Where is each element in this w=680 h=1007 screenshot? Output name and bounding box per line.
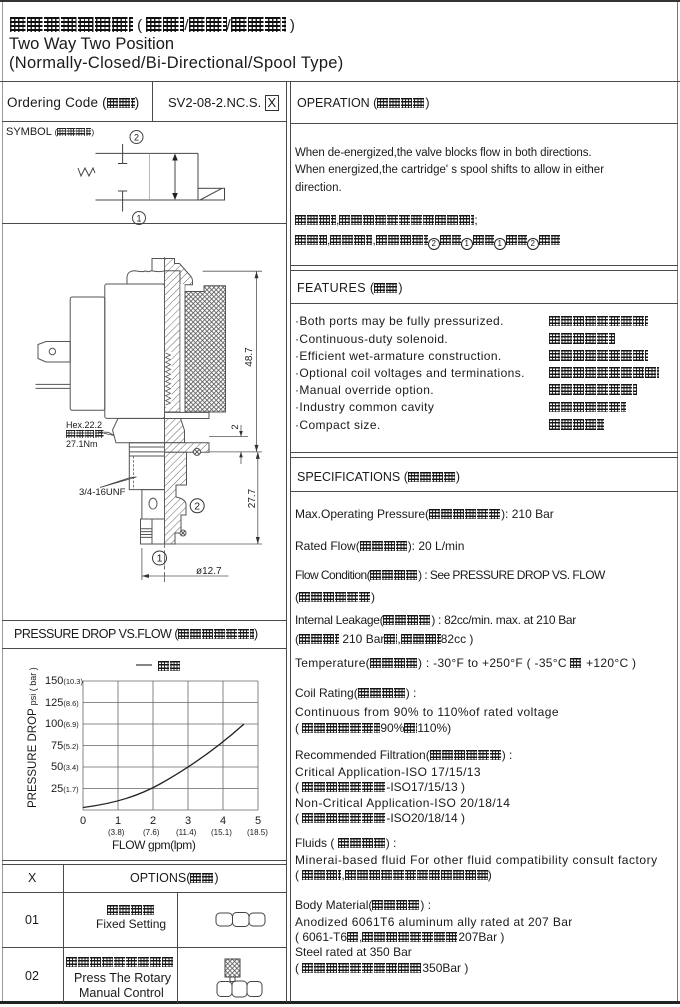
svg-text:27.7: 27.7 bbox=[247, 488, 258, 508]
svg-text:48.7: 48.7 bbox=[244, 347, 255, 367]
svg-text:1: 1 bbox=[157, 553, 163, 565]
svg-text:1: 1 bbox=[136, 214, 141, 224]
svg-text:2: 2 bbox=[134, 133, 139, 143]
svg-text:2: 2 bbox=[230, 424, 241, 429]
svg-text:2: 2 bbox=[194, 501, 200, 513]
svg-text:ø12.7: ø12.7 bbox=[196, 566, 222, 577]
